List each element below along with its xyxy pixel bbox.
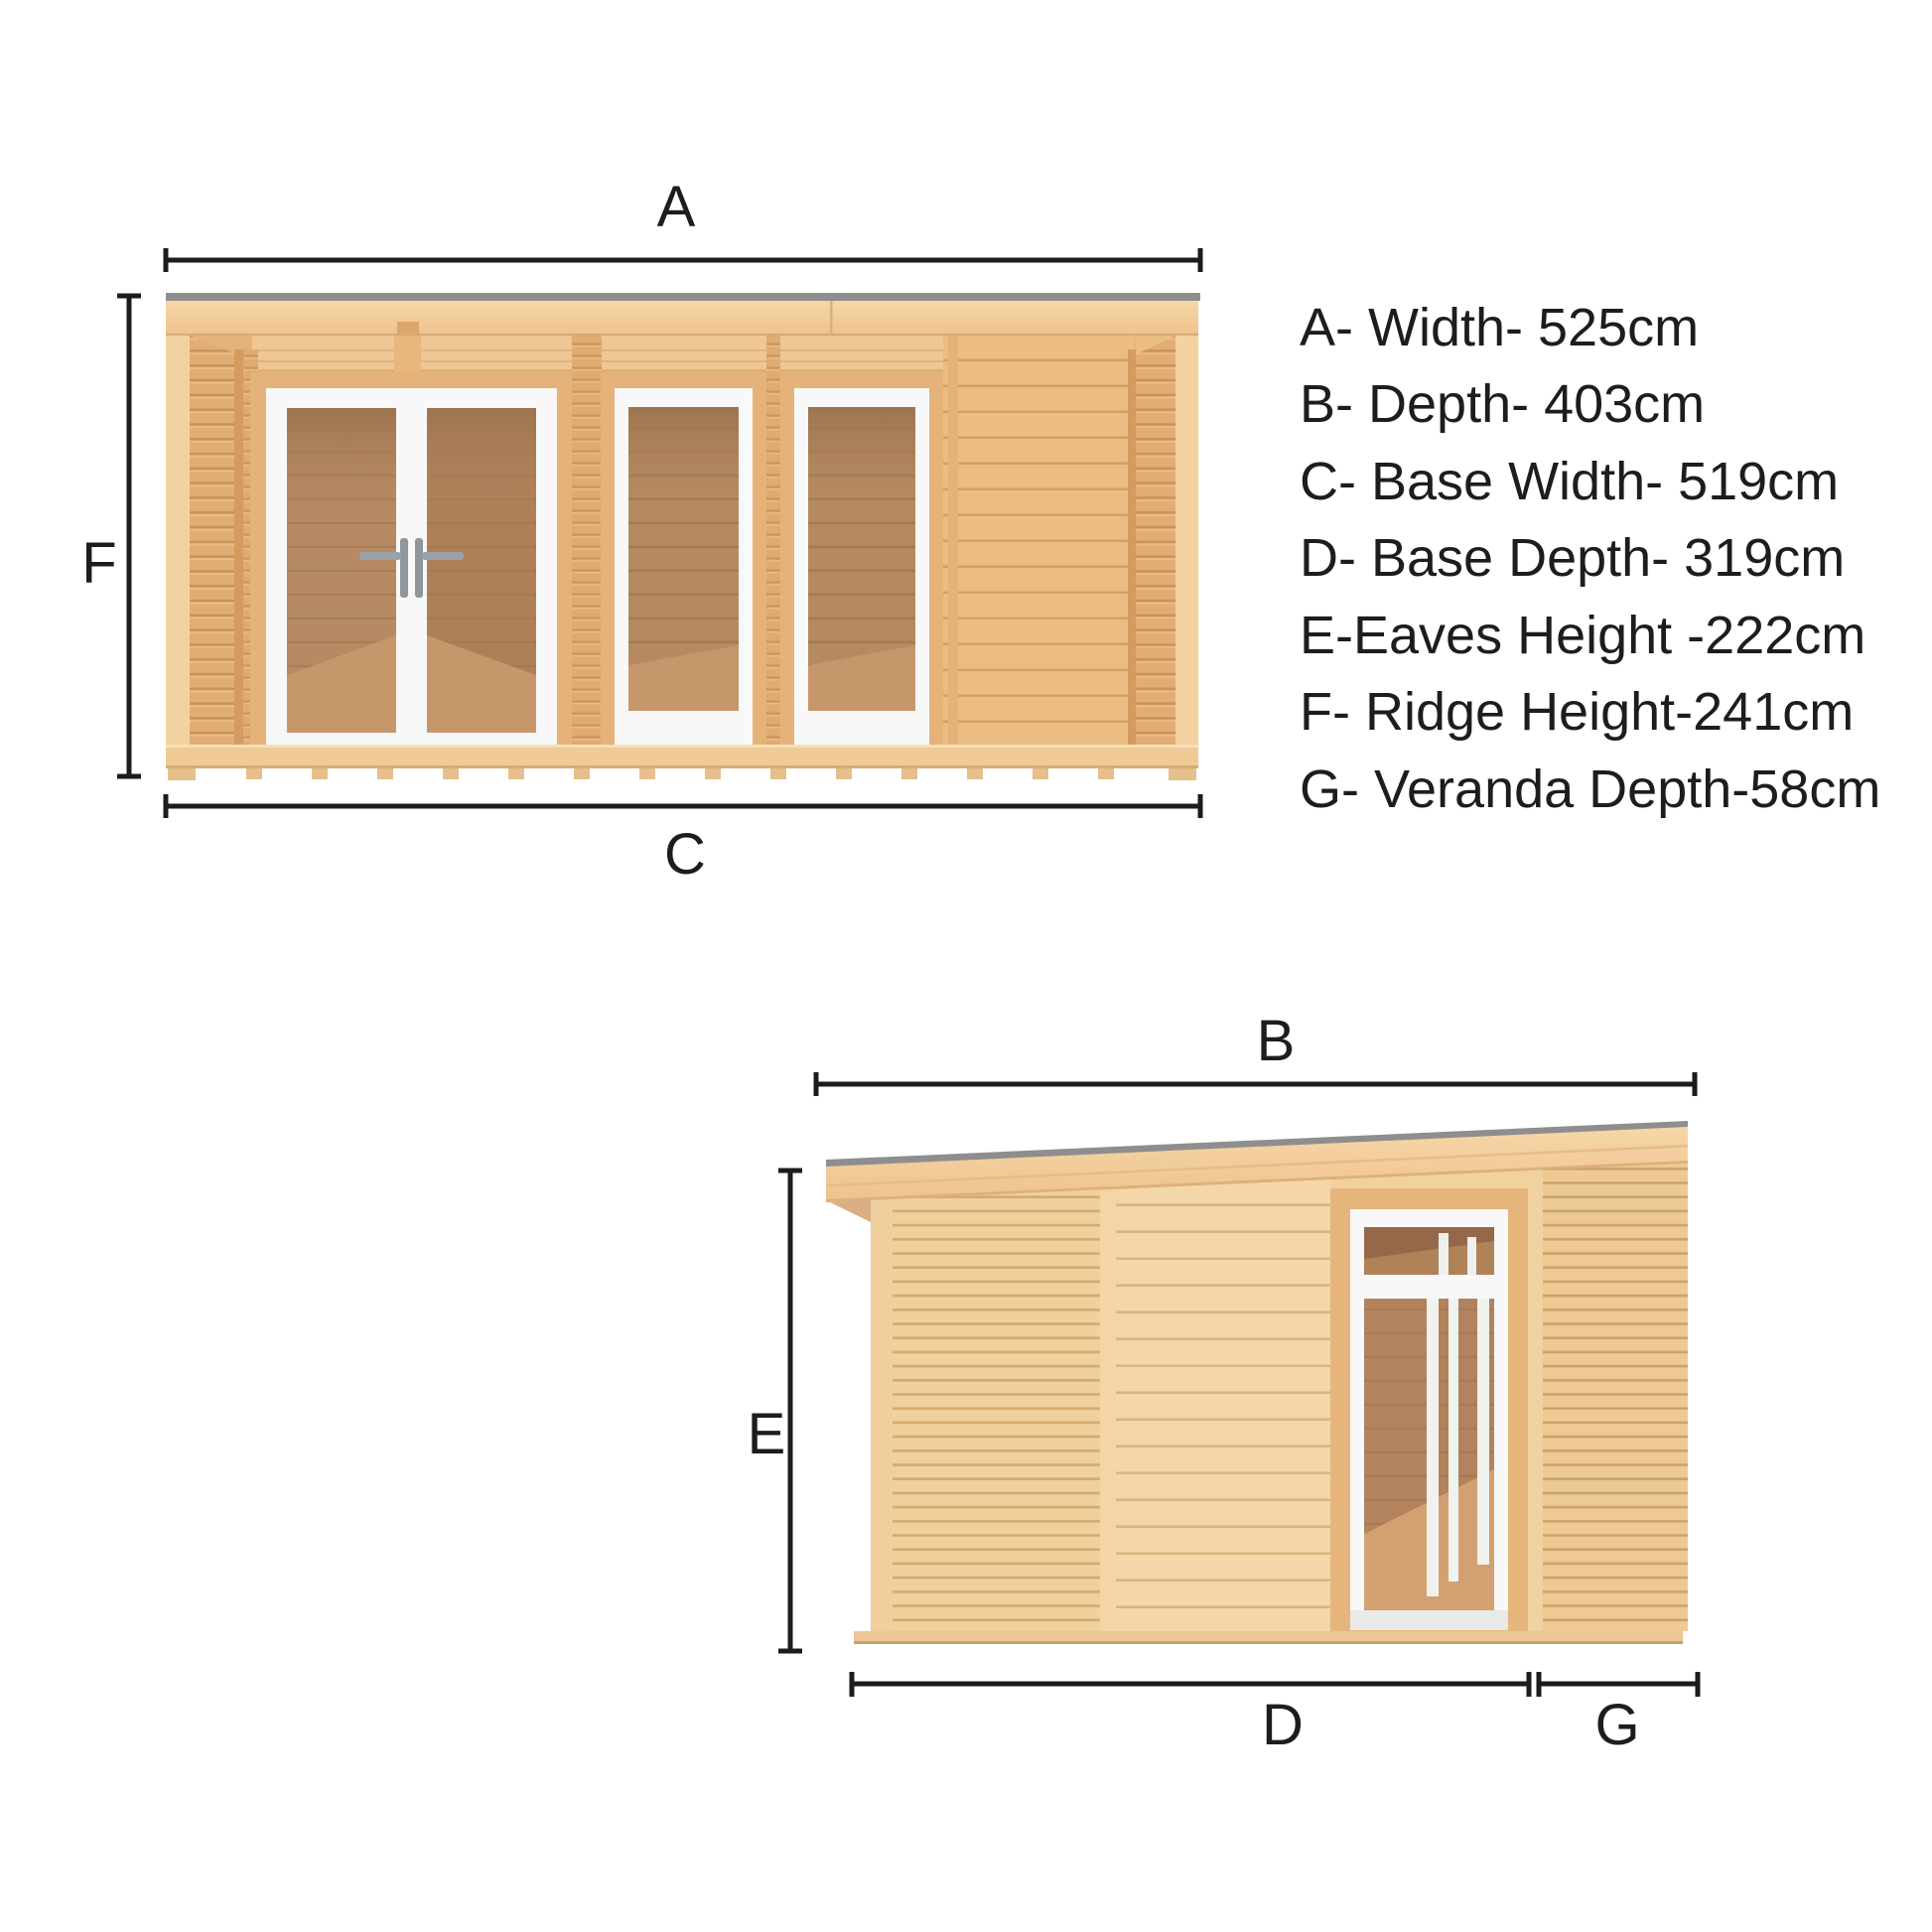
svg-text:A- Width- 525cm: A- Width- 525cm bbox=[1300, 298, 1699, 357]
svg-text:D- Base Depth- 319cm: D- Base Depth- 319cm bbox=[1300, 528, 1845, 588]
svg-text:G- Veranda Depth-58cm: G- Veranda Depth-58cm bbox=[1300, 759, 1880, 819]
svg-text:F: F bbox=[81, 531, 116, 596]
svg-text:C- Base Width- 519cm: C- Base Width- 519cm bbox=[1300, 452, 1839, 511]
svg-text:F- Ridge Height-241cm: F- Ridge Height-241cm bbox=[1300, 682, 1854, 742]
svg-text:D: D bbox=[1262, 1693, 1304, 1757]
svg-text:B- Depth- 403cm: B- Depth- 403cm bbox=[1300, 374, 1705, 434]
svg-text:G: G bbox=[1594, 1693, 1639, 1757]
svg-text:E: E bbox=[748, 1402, 786, 1466]
svg-text:A: A bbox=[657, 175, 696, 239]
svg-text:E-Eaves Height -222cm: E-Eaves Height -222cm bbox=[1300, 606, 1865, 665]
svg-text:B: B bbox=[1257, 1009, 1296, 1073]
svg-text:C: C bbox=[664, 822, 706, 887]
